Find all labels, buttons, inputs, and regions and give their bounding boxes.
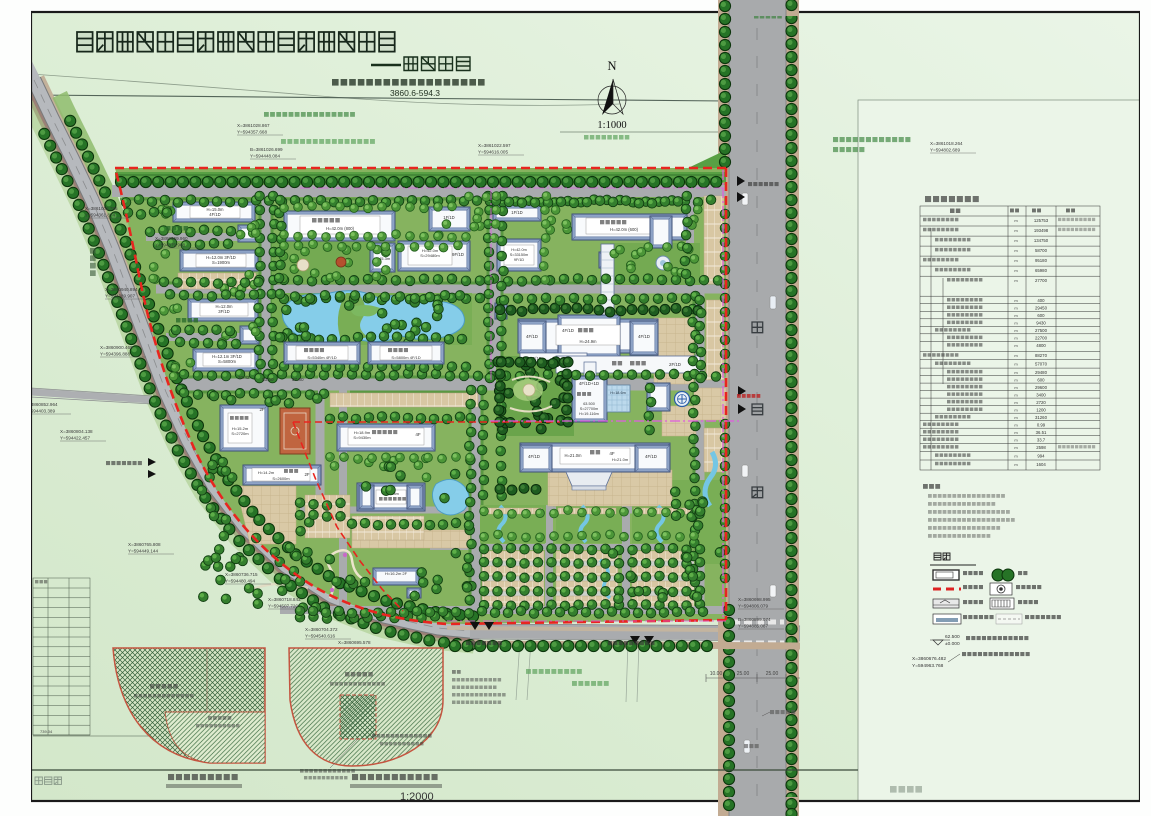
svg-text:X=3860940.894: X=3860940.894 [105,287,138,292]
svg-text:2598: 2598 [1036,445,1046,450]
svg-text:4F/1D: 4F/1D [562,328,574,333]
svg-text:N: N [607,59,616,73]
svg-text:63.500: 63.500 [583,402,595,406]
svg-text:33.7: 33.7 [1037,438,1046,443]
svg-text:4F/1D: 4F/1D [528,454,540,459]
svg-text:9430: 9430 [1036,321,1046,326]
svg-text:S=5800m: S=5800m [218,359,237,364]
svg-text:994: 994 [1037,453,1045,458]
svg-text:53.60: 53.60 [262,377,274,382]
svg-text:88270: 88270 [1035,353,1048,358]
svg-text:H=42.0m (800): H=42.0m (800) [326,226,355,231]
svg-text:4F/1D: 4F/1D [638,334,650,339]
svg-text:Y=594396.888: Y=594396.888 [100,352,130,357]
svg-text:0.99: 0.99 [1037,423,1046,428]
svg-text:S=29480m: S=29480m [420,253,440,258]
svg-text:S=2600m: S=2600m [272,476,290,481]
svg-text:S=2720m: S=2720m [231,431,249,436]
svg-text:2720: 2720 [1036,400,1046,405]
svg-text:3400: 3400 [1036,392,1046,397]
svg-text:S=9430m: S=9430m [353,435,371,440]
svg-text:X=3860676.482: X=3860676.482 [912,656,946,662]
svg-text:S=1900m: S=1900m [212,260,231,265]
svg-text:S=5340m 4F/1D: S=5340m 4F/1D [307,355,336,360]
svg-text:X=3860900.469: X=3860900.469 [100,345,133,350]
svg-text:4F/1D+1D: 4F/1D+1D [579,381,599,386]
svg-text:27500: 27500 [1035,328,1048,333]
svg-text:Y=594806.079: Y=594806.079 [738,604,768,609]
svg-text:Y=594403.389: Y=594403.389 [25,409,55,414]
svg-text:4F/1D: 4F/1D [526,334,538,339]
svg-text:95180: 95180 [1035,258,1048,263]
svg-text:29450: 29450 [1035,306,1048,311]
svg-text:58700: 58700 [1035,248,1048,253]
svg-text:Y=594802.689: Y=594802.689 [930,148,960,153]
svg-text:25.00: 25.00 [737,671,750,677]
svg-text:10.00: 10.00 [710,671,723,677]
svg-text:H=16.2m 2F: H=16.2m 2F [385,571,408,576]
svg-text:X=3860765.808: X=3860765.808 [128,542,161,547]
svg-text:1604: 1604 [1036,462,1046,467]
svg-text:X=3860704.372: X=3860704.372 [305,627,338,632]
svg-text:X=3861018.264: X=3861018.264 [930,141,963,146]
svg-text:X=3860695.578: X=3860695.578 [338,640,371,645]
svg-text:31260: 31260 [1035,415,1048,420]
svg-text:29600: 29600 [1035,385,1048,390]
svg-text:S=27700m: S=27700m [580,407,598,411]
svg-text:H=24.9m: H=24.9m [579,339,597,344]
svg-text:Y=594361.874: Y=594361.874 [85,213,115,218]
svg-text:H=14.2m: H=14.2m [258,470,275,475]
svg-text:S=5800m 4F/1D: S=5800m 4F/1D [391,355,420,360]
svg-text:H=21.0m: H=21.0m [564,453,582,458]
svg-text:X=3860736.715: X=3860736.715 [225,572,258,577]
svg-text:2F/1D: 2F/1D [669,362,681,367]
svg-text:4F/1D: 4F/1D [645,454,657,459]
svg-text:1200: 1200 [1036,407,1046,412]
svg-text:20.42: 20.42 [238,375,250,380]
svg-text:25.00: 25.00 [766,671,779,677]
svg-text:2F: 2F [259,407,264,412]
svg-text:193498: 193498 [1034,228,1049,233]
svg-text:22700: 22700 [1035,336,1048,341]
svg-text:29480: 29480 [1035,370,1048,375]
svg-text:Y=594963.768: Y=594963.768 [912,663,944,669]
svg-text:37.80: 37.80 [292,377,304,382]
svg-text:Y=594480.494: Y=594480.494 [225,579,255,584]
svg-text:Y=594540.616: Y=594540.616 [305,634,335,639]
svg-text:9F/1D: 9F/1D [452,252,464,257]
svg-text:X=3860969.960: X=3860969.960 [155,236,188,241]
svg-text:27700: 27700 [1035,278,1048,283]
svg-text:H=42.0m (600): H=42.0m (600) [610,227,639,232]
svg-text:134750: 134750 [1034,238,1049,243]
svg-text:600: 600 [1037,377,1045,382]
svg-text:H=42.0m: H=42.0m [511,248,527,252]
svg-text:9F/1D: 9F/1D [514,258,525,262]
svg-text:H=21.0m: H=21.0m [612,457,629,462]
svg-text:125753: 125753 [1034,218,1049,223]
svg-text:S=33150m: S=33150m [510,253,528,257]
svg-text:36.51: 36.51 [1036,430,1047,435]
svg-text:400: 400 [1037,298,1045,303]
svg-text:3860.6-594.3: 3860.6-594.3 [390,88,440,98]
svg-text:600: 600 [1037,313,1045,318]
svg-text:4F/1D: 4F/1D [209,212,220,217]
svg-text:X=3860852.964: X=3860852.964 [25,402,58,407]
svg-text:62.500: 62.500 [945,634,960,640]
svg-text:Y=594357.668: Y=594357.668 [237,130,267,135]
svg-text:Y=594616.005: Y=594616.005 [478,150,508,155]
svg-text:B=3861026.699: B=3861026.699 [250,147,283,152]
svg-text:Y=594389.907: Y=594389.907 [105,294,135,299]
svg-text:X=3860698.995: X=3860698.995 [738,597,771,602]
svg-text:B=3860899.074: B=3860899.074 [738,617,771,622]
svg-text:±0.000: ±0.000 [945,641,960,647]
svg-text:X=3861005.785: X=3861005.785 [85,206,118,211]
svg-text:2F: 2F [304,472,309,477]
svg-text:1F/1D: 1F/1D [511,210,522,215]
svg-text:Y=594449.144: Y=594449.144 [128,549,158,554]
svg-text:X=3860718.843: X=3860718.843 [268,597,301,602]
svg-text:Y=594885.087: Y=594885.087 [738,624,768,629]
svg-text:X=3861022.597: X=3861022.597 [478,143,511,148]
svg-text:65980: 65980 [1035,268,1048,273]
svg-text:Y=594448.084: Y=594448.084 [250,154,280,159]
svg-text:X=3860804.138: X=3860804.138 [60,429,93,434]
svg-text:1F/1D: 1F/1D [443,215,454,220]
svg-text:Y=594507.720: Y=594507.720 [268,604,298,609]
svg-text:739.04: 739.04 [40,729,53,734]
svg-text:4F: 4F [609,451,615,456]
svg-text:1:1000: 1:1000 [597,120,626,131]
svg-text:3F/1D: 3F/1D [218,309,229,314]
svg-text:4F: 4F [415,432,421,437]
svg-text:H=18.6m: H=18.6m [610,391,626,395]
svg-text:57070: 57070 [1035,362,1048,367]
svg-text:X=3861028.867: X=3861028.867 [237,123,270,128]
svg-text:Y=594422.457: Y=594422.457 [60,436,90,441]
svg-text:H=19-116m: H=19-116m [579,412,599,416]
svg-text:Y=594379.908: Y=594379.908 [155,243,185,248]
svg-text:4800: 4800 [1036,343,1046,348]
